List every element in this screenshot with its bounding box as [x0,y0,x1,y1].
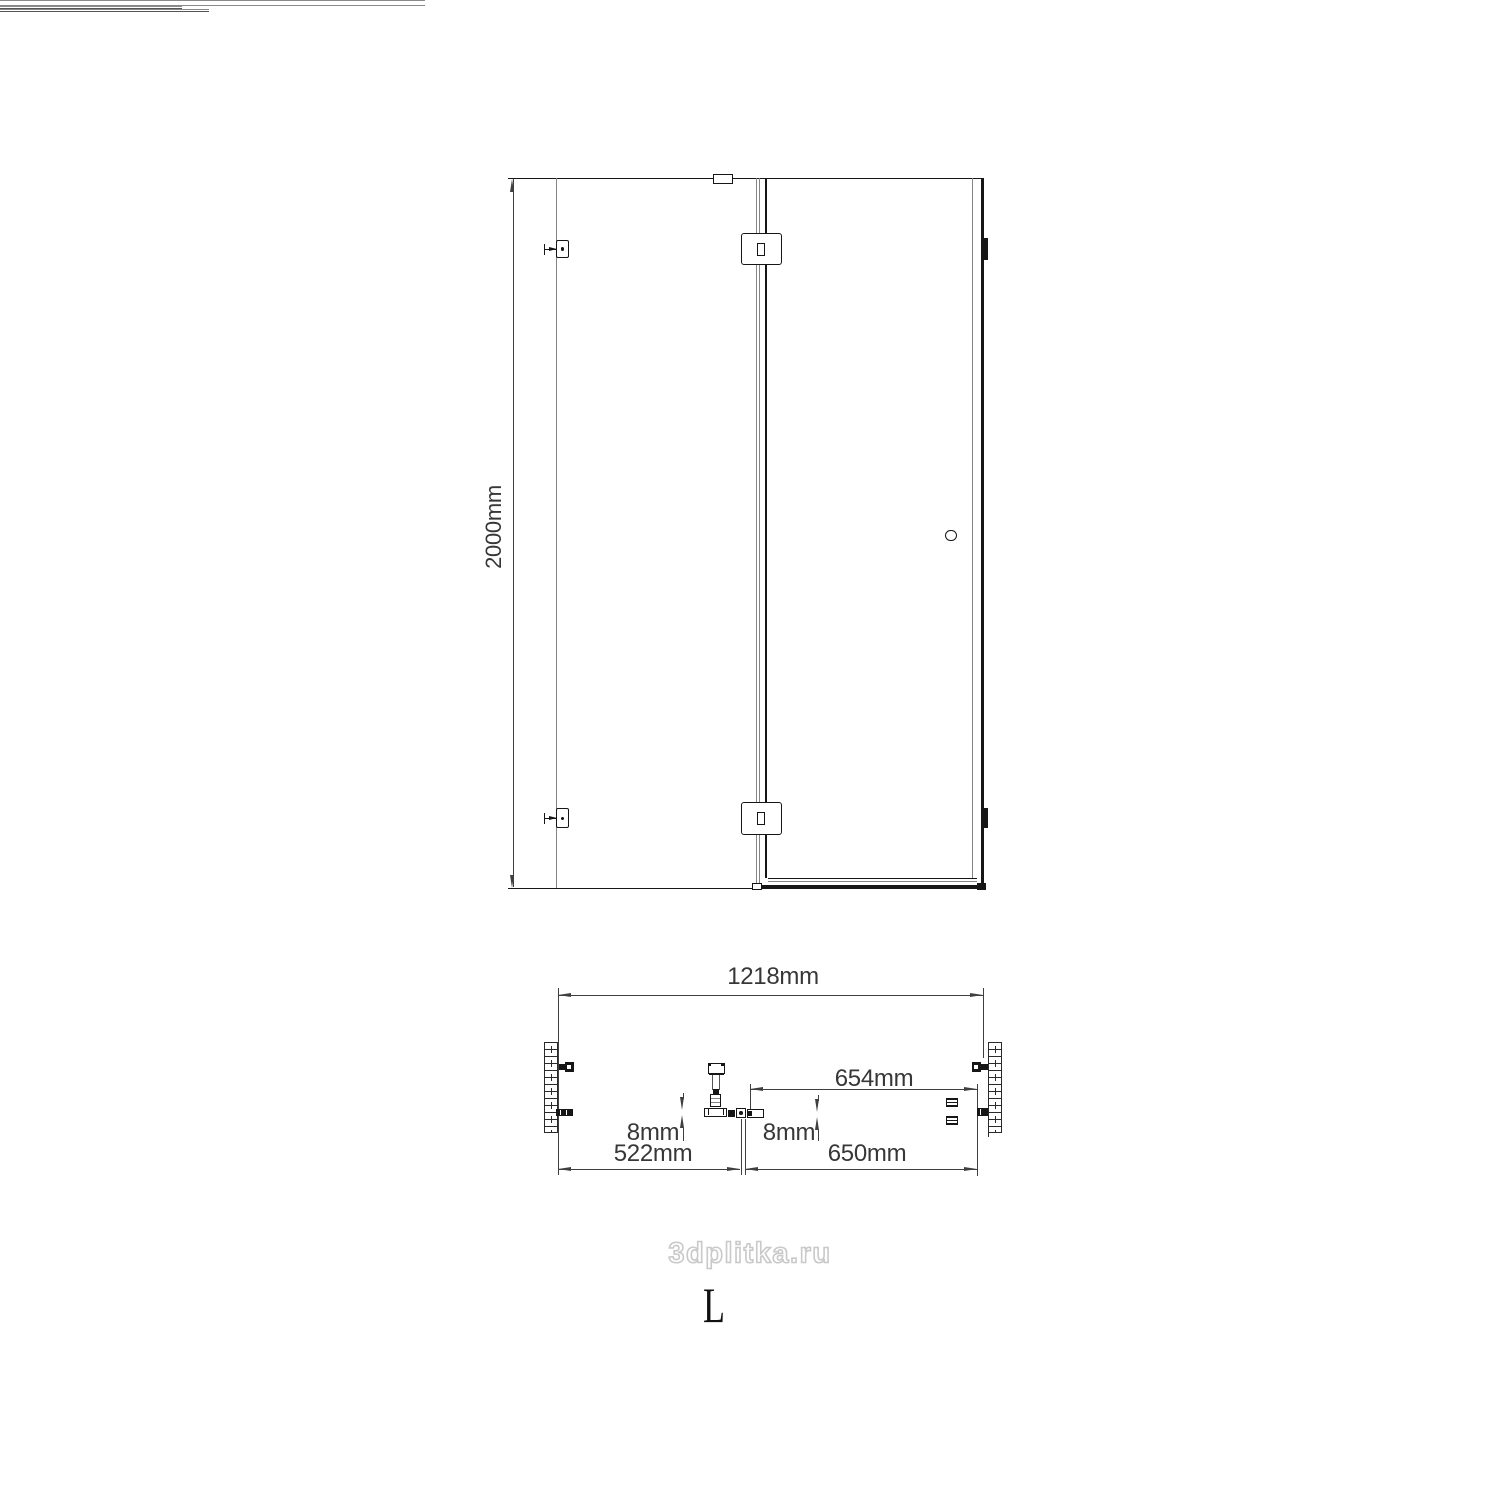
opening-width-arrow-left [745,1167,758,1171]
door-right-edge [972,178,973,878]
sill-endcap-right [977,883,986,890]
support-arm-stem [712,1075,720,1091]
opening-width-dim-line [745,1169,977,1170]
fixed-panel-right-edge-1 [756,178,757,883]
door-wall-bracket-right [977,1108,988,1116]
fixed-width-dim-line [558,1169,740,1170]
door-glass-panel [0,9,209,12]
overall-width-arrow-left [558,993,571,997]
ext-line-654-650-right [977,1084,978,1176]
door-thickness-label: 8mm [763,1119,815,1147]
door-hinge-plate-screw [748,1111,752,1116]
wall-hatch-right [988,1042,1002,1133]
fixed-glass-bracket-slit2 [566,1110,567,1115]
right-profile-tab-top [984,238,988,260]
door-thickness-arrow-down [815,1099,819,1112]
bar-bracket-right-slot [974,1065,977,1069]
door-knob [945,530,957,542]
overall-width-arrow-right [970,993,983,997]
hinge-top-notch [757,243,765,256]
door-knob-plan-top [946,1098,958,1108]
door-width-arrow-right [964,1087,977,1091]
support-arm-block-line2 [711,1102,720,1103]
support-arm-block-line1 [711,1098,720,1099]
door-thickness-arrow-up [815,1117,819,1130]
height-dimension-label: 2000mm [481,485,507,569]
bar-center-screw-left [709,1064,712,1067]
opening-width-label: 650mm [828,1140,907,1168]
bar-bracket-left-slot [567,1065,570,1069]
top-support-bar-line [508,178,983,179]
support-arm-block [710,1094,722,1107]
sill-top-line [768,878,977,879]
fixed-thickness-arrow-up [680,1115,684,1128]
overall-width-dim-line [558,995,983,996]
bar-wall-bracket-right-stub [981,1064,988,1070]
pivot-block-left [728,1110,735,1117]
orientation-letter: L [703,1276,725,1334]
bar-wall-bracket-left-stub [559,1064,565,1070]
height-dim-arrow-top [510,179,514,192]
fixed-width-arrow-left [558,1167,571,1171]
door-knob-plan-bottom [946,1116,958,1126]
hinge-bottom-notch [757,812,765,825]
glass-clamp-slot-right [723,1109,724,1116]
ext-line-left-wall [558,988,559,1175]
right-profile-tab-bottom [984,808,988,828]
wall-bracket-screw-top [561,247,564,250]
technical-drawing-canvas: 2000mm [0,0,1500,1500]
door-hinge-edge [765,178,768,878]
height-dim-arrow-bottom [510,875,514,888]
fixed-glass-bracket-slit1 [560,1110,561,1115]
watermark-text: 3dplitka.ru [668,1238,831,1271]
door-thickness-stem-bottom [818,1130,819,1141]
sill-endcap-left [752,883,762,890]
wall-hatch-left [544,1042,558,1133]
bar-center-screw-right [721,1064,724,1067]
plan-view: 1218mm [0,0,1500,12]
fixed-panel-left-edge [556,178,557,888]
fixed-width-label: 522mm [614,1140,693,1168]
door-width-arrow-left [750,1087,763,1091]
opening-width-arrow-right [964,1167,977,1171]
ext-line-right-1218 [983,988,984,1058]
bar-clamp [713,174,733,184]
overall-width-label: 1218mm [727,963,819,991]
pivot-hinge-pin [739,1111,743,1115]
fixed-panel-right-edge-2 [759,178,760,883]
sill-mid-line [768,881,977,882]
sill-band [752,885,985,889]
ext-line-522-right [741,1119,742,1175]
fixed-thickness-arrow-down [680,1097,684,1110]
right-wall-profile [981,178,984,889]
door-width-label: 654mm [835,1065,914,1093]
height-dimension-line [513,179,514,887]
glass-clamp-slot-left [708,1109,709,1116]
fixed-width-arrow-right [727,1167,740,1171]
door-bracket-slit [980,1109,981,1115]
fixed-glass-wall-bracket [556,1109,573,1117]
